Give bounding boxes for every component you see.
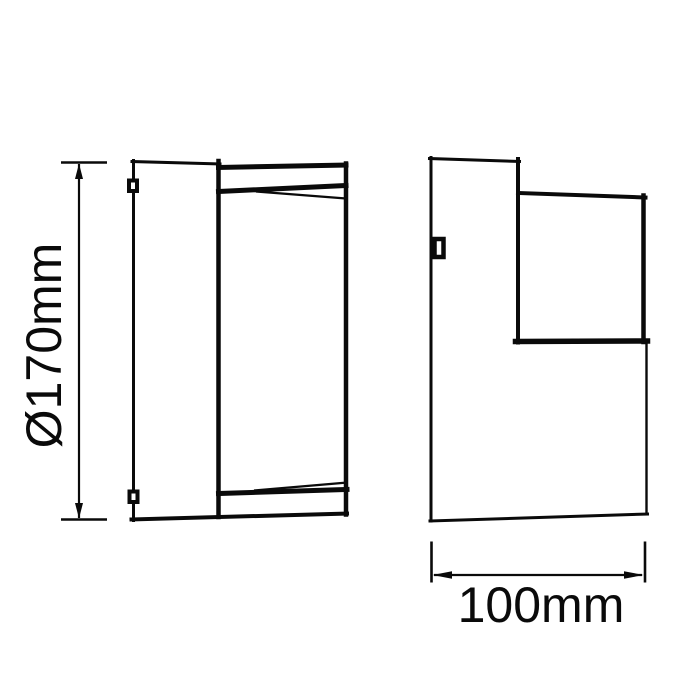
- side-view: [430, 158, 648, 522]
- side-bottom-edge: [430, 514, 648, 521]
- front-top-rim-line: [219, 186, 347, 192]
- side-clip-icon: [435, 239, 444, 257]
- height-dimension: Ø170mm: [16, 163, 107, 520]
- front-body-top-edge: [219, 165, 347, 168]
- drawing-canvas: Ø170mm 100mm: [0, 0, 676, 676]
- arrow-down-icon: [75, 503, 83, 519]
- front-bottom-edge: [132, 514, 348, 520]
- side-head-top-edge: [518, 193, 646, 198]
- depth-dimension-label: 100mm: [458, 577, 625, 633]
- technical-drawing: Ø170mm 100mm: [0, 0, 676, 676]
- depth-dimension: 100mm: [432, 542, 646, 634]
- front-panel-top-edge: [132, 162, 220, 165]
- arrow-right-icon: [624, 571, 644, 579]
- front-clip-bottom-icon: [130, 492, 138, 503]
- arrow-up-icon: [75, 164, 83, 180]
- front-clip-top-icon: [129, 181, 137, 192]
- front-bottom-rim-line: [219, 490, 348, 494]
- front-view: [129, 161, 348, 521]
- height-dimension-label: Ø170mm: [16, 243, 72, 449]
- front-top-wedge-line: [256, 192, 346, 199]
- side-top-edge: [430, 159, 520, 162]
- arrow-left-icon: [433, 571, 453, 579]
- side-head-bottom-edge: [516, 341, 648, 342]
